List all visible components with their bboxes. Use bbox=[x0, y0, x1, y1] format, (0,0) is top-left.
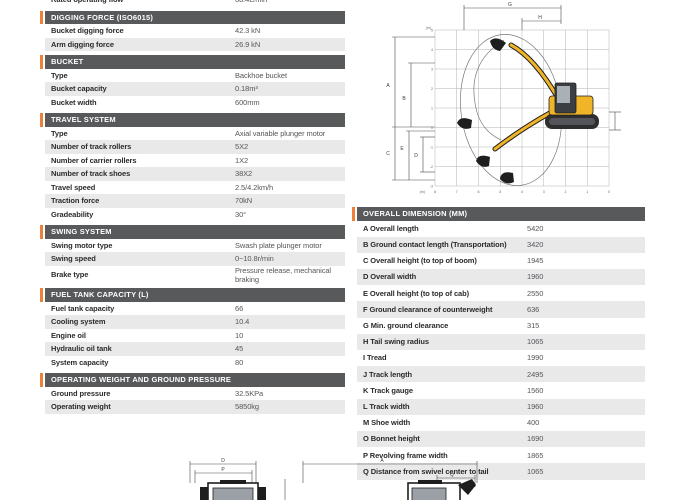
row-label: Swing speed bbox=[51, 254, 235, 263]
row-label: H Tail swing radius bbox=[363, 337, 527, 346]
row-label: D Overall width bbox=[363, 272, 527, 281]
row-label: O Bonnet height bbox=[363, 434, 527, 443]
row-label: Rated operating flow bbox=[51, 0, 235, 4]
table-row: O Bonnet height1690 bbox=[357, 431, 645, 447]
dim-label-d: D bbox=[414, 153, 418, 159]
x-tick-label: 4 bbox=[521, 190, 523, 194]
row-value: 1945 bbox=[527, 256, 645, 265]
row-label: C Overall height (to top of boom) bbox=[363, 256, 527, 265]
table-row: A Overall length5420 bbox=[357, 221, 645, 237]
row-label: Ground pressure bbox=[51, 389, 235, 398]
x-tick-label: 5 bbox=[499, 190, 501, 194]
row-label: E Overall height (to top of cab) bbox=[363, 289, 527, 298]
table-row: Traction force70kN bbox=[45, 194, 345, 208]
row-value: 1960 bbox=[527, 402, 645, 411]
table-row: Bucket capacity0.18m³ bbox=[45, 82, 345, 96]
table-row: Travel speed2.5/4.2km/h bbox=[45, 181, 345, 195]
dim-label-c: C bbox=[386, 151, 390, 157]
row-value: 3420 bbox=[527, 240, 645, 249]
table-row: Ground pressure32.5KPa bbox=[45, 387, 345, 401]
row-label: System capacity bbox=[51, 358, 235, 367]
row-label: Number of track rollers bbox=[51, 142, 235, 151]
y-tick-label: 4 bbox=[431, 48, 433, 52]
y-axis-ticks: 543210-1-2-3 bbox=[430, 28, 433, 188]
x-tick-label: 3 bbox=[543, 190, 545, 194]
bucket-shapes bbox=[457, 38, 514, 183]
dim-label-a: A bbox=[386, 83, 390, 89]
table-row: B Ground contact length (Transportation)… bbox=[357, 237, 645, 253]
row-label: Gradeability bbox=[51, 210, 235, 219]
row-label: Number of carrier rollers bbox=[51, 156, 235, 165]
row-value: 1065 bbox=[527, 467, 645, 476]
row-value: 636 bbox=[527, 305, 645, 314]
row-value: Swash plate plunger motor bbox=[235, 241, 345, 250]
row-label: A Overall length bbox=[363, 224, 527, 233]
y-tick-label: -1 bbox=[430, 145, 433, 149]
row-label: Travel speed bbox=[51, 183, 235, 192]
row-value: 1X2 bbox=[235, 156, 345, 165]
x-tick-label: 7 bbox=[456, 190, 458, 194]
table-row: Number of track rollers5X2 bbox=[45, 140, 345, 154]
y-tick-label: 5 bbox=[431, 28, 433, 32]
table-row: TypeBackhoe bucket bbox=[45, 69, 345, 83]
dimension-rows: A Overall length5420B Ground contact len… bbox=[357, 221, 645, 480]
row-value: 45 bbox=[235, 344, 345, 353]
row-value: 80 bbox=[235, 358, 345, 367]
row-value: 5X2 bbox=[235, 142, 345, 151]
row-value: 38X2 bbox=[235, 169, 345, 178]
row-label: Type bbox=[51, 129, 235, 138]
dim-label-d: D bbox=[221, 458, 225, 464]
row-label: Bucket digging force bbox=[51, 26, 235, 35]
row-value: 400 bbox=[527, 418, 645, 427]
y-tick-label: -3 bbox=[430, 184, 433, 188]
row-value: 42.3 kN bbox=[235, 26, 345, 35]
row-label: K Track gauge bbox=[363, 386, 527, 395]
x-tick-label: 1 bbox=[586, 190, 588, 194]
table-row: D Overall width1960 bbox=[357, 269, 645, 285]
row-value: 1065 bbox=[527, 337, 645, 346]
row-value: 30° bbox=[235, 210, 345, 219]
row-value: Pressure release, mechanical braking bbox=[235, 266, 345, 285]
specification-table: Rated operating flow 68.4L/min DIGGING F… bbox=[45, 0, 345, 414]
table-row: E Overall height (to top of cab)2550 bbox=[357, 285, 645, 301]
table-row: F Ground clearance of counterweight636 bbox=[357, 301, 645, 317]
dim-label-h: H bbox=[538, 15, 542, 21]
section-header: FUEL TANK CAPACITY (L) bbox=[45, 288, 345, 302]
table-row: Bucket width600mm bbox=[45, 96, 345, 110]
machine-front-shape bbox=[200, 480, 266, 500]
y-axis-unit: (m) bbox=[426, 26, 431, 30]
row-value: Axial variable plunger motor bbox=[235, 129, 345, 138]
row-value: 1560 bbox=[527, 386, 645, 395]
row-label: Type bbox=[51, 71, 235, 80]
table-row: Hydraulic oil tank45 bbox=[45, 342, 345, 356]
row-value: 1690 bbox=[527, 434, 645, 443]
row-label: L Track width bbox=[363, 402, 527, 411]
row-value: 68.4L/min bbox=[235, 0, 345, 4]
row-label: Operating weight bbox=[51, 402, 235, 411]
row-value: 0.18m³ bbox=[235, 84, 345, 93]
row-label: Brake type bbox=[51, 270, 235, 279]
row-value: 315 bbox=[527, 321, 645, 330]
section-header: BUCKET bbox=[45, 55, 345, 69]
side-view-diagram: A Q bbox=[300, 455, 540, 500]
row-value: 10.4 bbox=[235, 317, 345, 326]
row-value: 2550 bbox=[527, 289, 645, 298]
table-row: I Tread1990 bbox=[357, 350, 645, 366]
spec-sections: DIGGING FORCE (ISO6015)Bucket digging fo… bbox=[45, 11, 345, 414]
x-tick-label: 2 bbox=[565, 190, 567, 194]
machine-side-shape bbox=[408, 479, 476, 500]
row-label: Fuel tank capacity bbox=[51, 304, 235, 313]
section-header: TRAVEL SYSTEM bbox=[45, 113, 345, 127]
y-tick-label: 1 bbox=[431, 106, 433, 110]
y-tick-label: 3 bbox=[431, 67, 433, 71]
table-row: J Track length2495 bbox=[357, 366, 645, 382]
table-row: C Overall height (to top of boom)1945 bbox=[357, 253, 645, 269]
row-value: Backhoe bucket bbox=[235, 71, 345, 80]
x-tick-label: 6 bbox=[478, 190, 480, 194]
section-header: OPERATING WEIGHT AND GROUND PRESSURE bbox=[45, 373, 345, 387]
section-header: OVERALL DIMENSION (MM) bbox=[357, 207, 645, 221]
row-value: 32.5KPa bbox=[235, 389, 345, 398]
row-label: Engine oil bbox=[51, 331, 235, 340]
working-range-diagram: G H A B C E D 876543210 543210-1-2-3 (m)… bbox=[383, 0, 645, 206]
row-value: 26.9 kN bbox=[235, 40, 345, 49]
table-row: Rated operating flow 68.4L/min bbox=[45, 0, 345, 7]
row-label: Bucket width bbox=[51, 98, 235, 107]
table-row: Bucket digging force42.3 kN bbox=[45, 24, 345, 38]
section-header: DIGGING FORCE (ISO6015) bbox=[45, 11, 345, 25]
row-label: J Track length bbox=[363, 370, 527, 379]
x-tick-label: 8 bbox=[434, 190, 436, 194]
table-row: Swing motor typeSwash plate plunger moto… bbox=[45, 239, 345, 253]
row-label: I Tread bbox=[363, 353, 527, 362]
table-row: Number of carrier rollers1X2 bbox=[45, 154, 345, 168]
overall-dimension-table: OVERALL DIMENSION (MM) A Overall length5… bbox=[357, 207, 645, 480]
y-tick-label: 0 bbox=[431, 126, 433, 130]
row-label: B Ground contact length (Transportation) bbox=[363, 240, 527, 249]
row-value: 10 bbox=[235, 331, 345, 340]
dim-label-q: Q bbox=[450, 472, 454, 478]
dimension-lines bbox=[392, 5, 621, 180]
table-row: Fuel tank capacity66 bbox=[45, 302, 345, 316]
row-label: Arm digging force bbox=[51, 40, 235, 49]
dim-label-g: G bbox=[508, 2, 512, 8]
row-label: Hydraulic oil tank bbox=[51, 344, 235, 353]
dim-label-e: E bbox=[400, 146, 404, 152]
table-row: H Tail swing radius1065 bbox=[357, 334, 645, 350]
row-value: 70kN bbox=[235, 196, 345, 205]
x-axis-ticks: 876543210 bbox=[434, 190, 610, 194]
row-value: 1865 bbox=[527, 451, 645, 460]
x-tick-label: 0 bbox=[608, 190, 610, 194]
row-value: 2495 bbox=[527, 370, 645, 379]
y-tick-label: 2 bbox=[431, 87, 433, 91]
row-value: 600mm bbox=[235, 98, 345, 107]
row-value: 2.5/4.2km/h bbox=[235, 183, 345, 192]
dim-label-p: P bbox=[221, 467, 225, 473]
y-tick-label: -2 bbox=[430, 165, 433, 169]
row-label: G Min. ground clearance bbox=[363, 321, 527, 330]
row-label: Bucket capacity bbox=[51, 84, 235, 93]
dim-label-a: A bbox=[380, 458, 384, 464]
row-value: 0~10.8r/min bbox=[235, 254, 345, 263]
row-value: 5420 bbox=[527, 224, 645, 233]
table-row: Cooling system10.4 bbox=[45, 315, 345, 329]
front-view-diagram: D P bbox=[180, 455, 300, 500]
table-row: Operating weight5850kg bbox=[45, 400, 345, 414]
x-axis-unit: (m) bbox=[420, 190, 425, 194]
table-row: TypeAxial variable plunger motor bbox=[45, 127, 345, 141]
dim-label-b: B bbox=[402, 96, 406, 102]
row-value: 1960 bbox=[527, 272, 645, 281]
table-row: Gradeability30° bbox=[45, 208, 345, 222]
section-header: SWING SYSTEM bbox=[45, 225, 345, 239]
table-row: M Shoe width400 bbox=[357, 415, 645, 431]
row-label: Cooling system bbox=[51, 317, 235, 326]
row-label: Swing motor type bbox=[51, 241, 235, 250]
table-row: System capacity80 bbox=[45, 356, 345, 370]
table-row: L Track width1960 bbox=[357, 399, 645, 415]
table-row: Arm digging force26.9 kN bbox=[45, 38, 345, 52]
table-row: Engine oil10 bbox=[45, 329, 345, 343]
row-value: 5850kg bbox=[235, 402, 345, 411]
row-label: Traction force bbox=[51, 196, 235, 205]
row-label: F Ground clearance of counterweight bbox=[363, 305, 527, 314]
table-row: K Track gauge1560 bbox=[357, 382, 645, 398]
row-value: 66 bbox=[235, 304, 345, 313]
table-row: Number of track shoes38X2 bbox=[45, 167, 345, 181]
table-row: Brake typePressure release, mechanical b… bbox=[45, 266, 345, 285]
row-label: M Shoe width bbox=[363, 418, 527, 427]
row-value: 1990 bbox=[527, 353, 645, 362]
table-row: Swing speed0~10.8r/min bbox=[45, 252, 345, 266]
table-row: G Min. ground clearance315 bbox=[357, 318, 645, 334]
row-label: Number of track shoes bbox=[51, 169, 235, 178]
